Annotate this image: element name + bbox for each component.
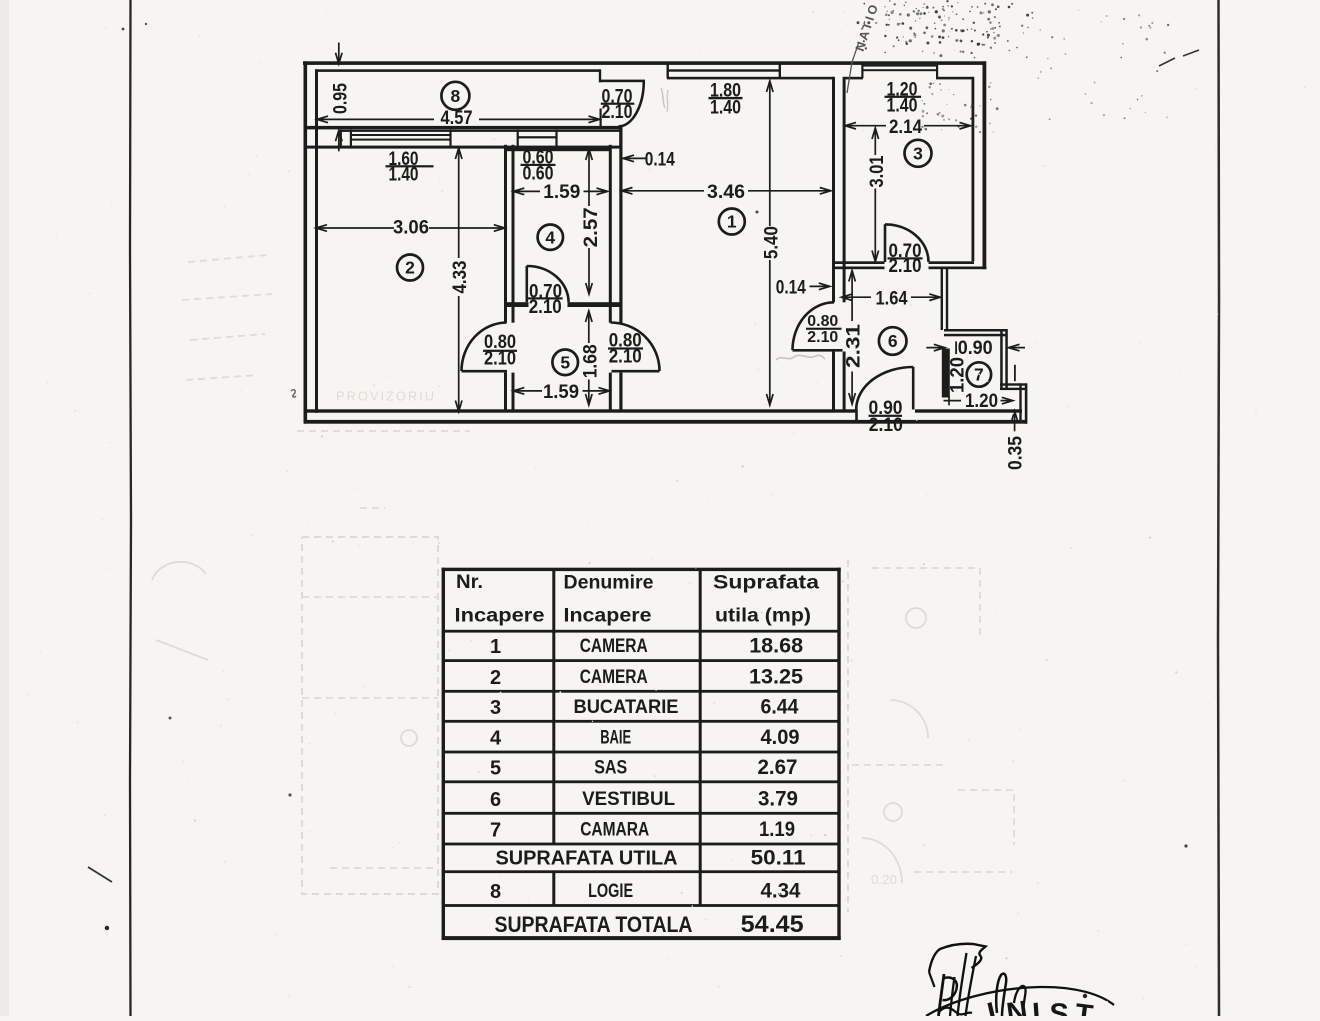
svg-text:1.40: 1.40 xyxy=(710,98,741,119)
svg-text:Nr.: Nr. xyxy=(456,571,483,593)
svg-text:2: 2 xyxy=(490,667,501,689)
svg-text:NATIO: NATIO xyxy=(853,1,882,53)
svg-text:4: 4 xyxy=(490,728,502,750)
svg-text:Incapere: Incapere xyxy=(455,604,545,626)
svg-text:6: 6 xyxy=(490,789,501,811)
svg-text:1.59: 1.59 xyxy=(543,382,579,403)
svg-text:1.20: 1.20 xyxy=(965,391,998,412)
svg-text:2.14: 2.14 xyxy=(889,117,922,138)
svg-text:1.19: 1.19 xyxy=(759,817,795,841)
svg-text:1.59: 1.59 xyxy=(543,182,580,203)
svg-text:SAS: SAS xyxy=(594,756,627,778)
svg-text:Denumire: Denumire xyxy=(564,572,654,594)
svg-text:I: I xyxy=(1031,997,1041,1016)
svg-text:2: 2 xyxy=(405,258,415,278)
svg-text:BUCATARIE: BUCATARIE xyxy=(574,696,679,718)
svg-text:4.33: 4.33 xyxy=(450,261,471,294)
svg-text:54.45: 54.45 xyxy=(741,911,804,938)
svg-text:CAMERA: CAMERA xyxy=(580,666,648,688)
svg-text:2.10: 2.10 xyxy=(609,346,642,367)
svg-text:1.64: 1.64 xyxy=(876,288,908,309)
svg-text:SUPRAFATA UTILA: SUPRAFATA UTILA xyxy=(496,847,678,870)
svg-text:0.90: 0.90 xyxy=(958,338,993,359)
svg-text:0.14: 0.14 xyxy=(776,278,806,299)
svg-text:T: T xyxy=(1073,998,1095,1016)
svg-text:4: 4 xyxy=(545,227,555,247)
svg-text:5: 5 xyxy=(490,757,501,779)
svg-text:3.06: 3.06 xyxy=(393,217,429,238)
svg-text:2.67: 2.67 xyxy=(758,755,798,779)
svg-text:3: 3 xyxy=(490,697,501,719)
svg-text:PROVIZORIU: PROVIZORIU xyxy=(336,389,436,404)
svg-text:Suprafata: Suprafata xyxy=(713,572,819,594)
svg-text:1: 1 xyxy=(490,636,501,658)
svg-text:7: 7 xyxy=(490,820,501,842)
svg-text:N: N xyxy=(1005,995,1030,1016)
svg-text:1: 1 xyxy=(727,212,737,232)
svg-text:2.10: 2.10 xyxy=(602,102,633,123)
svg-text:2.10: 2.10 xyxy=(869,415,903,436)
svg-text:SUPRAFATA TOTALA: SUPRAFATA TOTALA xyxy=(495,912,693,937)
svg-text:0.80: 0.80 xyxy=(807,313,838,330)
svg-text:0.95: 0.95 xyxy=(331,83,352,114)
svg-text:utila (mp): utila (mp) xyxy=(715,604,811,626)
svg-text:LOGIE: LOGIE xyxy=(588,880,633,902)
svg-text:CAMARA: CAMARA xyxy=(580,819,649,841)
svg-text:4.34: 4.34 xyxy=(761,879,801,903)
svg-text:2.57: 2.57 xyxy=(581,207,602,247)
svg-text:4.09: 4.09 xyxy=(761,725,800,749)
svg-text:2.10: 2.10 xyxy=(529,297,562,318)
svg-text:1.40: 1.40 xyxy=(887,96,918,117)
svg-text:3.01: 3.01 xyxy=(867,155,888,187)
svg-text:0.14: 0.14 xyxy=(645,150,675,171)
svg-text:6.44: 6.44 xyxy=(761,694,799,718)
svg-text:2.10: 2.10 xyxy=(889,256,922,277)
svg-text:3: 3 xyxy=(913,144,923,164)
svg-text:3.79: 3.79 xyxy=(758,786,798,810)
svg-text:5.40: 5.40 xyxy=(761,226,782,259)
svg-text:Incapere: Incapere xyxy=(564,604,652,626)
svg-text:2.31: 2.31 xyxy=(844,323,865,368)
svg-text:BAIE: BAIE xyxy=(600,727,631,749)
svg-text:2.10: 2.10 xyxy=(484,349,516,370)
svg-text:0.35: 0.35 xyxy=(1006,436,1027,470)
svg-text:VESTIBUL: VESTIBUL xyxy=(582,788,675,810)
svg-text:13.25: 13.25 xyxy=(749,664,803,688)
svg-text:8: 8 xyxy=(451,86,461,106)
svg-text:2.10: 2.10 xyxy=(807,329,838,346)
svg-text:5: 5 xyxy=(560,353,570,373)
svg-text:8: 8 xyxy=(490,881,501,903)
svg-text:0.20: 0.20 xyxy=(871,872,897,887)
svg-text:S: S xyxy=(1049,998,1069,1016)
svg-text:6: 6 xyxy=(888,331,898,351)
svg-text:50.11: 50.11 xyxy=(751,846,806,870)
svg-text:18.68: 18.68 xyxy=(749,634,803,658)
svg-text:CAMERA: CAMERA xyxy=(580,635,648,657)
svg-text:1.20: 1.20 xyxy=(948,357,969,393)
svg-text:1.68: 1.68 xyxy=(581,344,602,378)
svg-text:1.40: 1.40 xyxy=(389,164,419,185)
svg-text:3.46: 3.46 xyxy=(707,182,745,203)
